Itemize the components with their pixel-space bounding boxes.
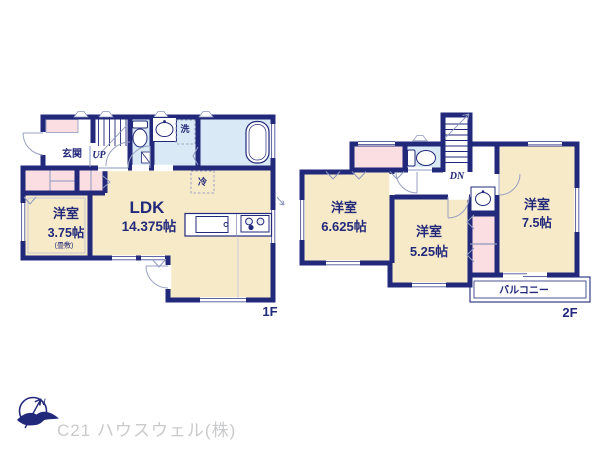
- entrance-closet: [46, 120, 78, 133]
- bedroom1-2f-size-label: 6.625帖: [321, 219, 367, 234]
- bedroom1-2f-label: 洋室: [331, 200, 357, 215]
- washer-label: 洗: [180, 123, 189, 134]
- bedroom-1f-size-label: 3.75帖: [48, 225, 85, 240]
- bedroom-1f-note-label: (畳敷): [55, 241, 74, 250]
- floor-plan-2f: DN 洋室 6.625帖 洋室 5.25帖 洋室 7.5帖 バルコニー 2F: [299, 114, 590, 320]
- stairs-down-label: DN: [449, 171, 465, 182]
- basin-icon-2f: [471, 187, 495, 211]
- ldk-size-label: 14.375帖: [122, 218, 177, 234]
- closet-2f-top: [352, 145, 405, 170]
- stove-icon: [241, 216, 269, 233]
- compass-north-label: N: [39, 397, 46, 408]
- floor1-label: 1F: [262, 304, 277, 319]
- ldk-label: LDK: [130, 198, 166, 217]
- toilet-icon-2f: [408, 150, 436, 166]
- floor2-label: 2F: [562, 305, 577, 320]
- floor-plan-image: 玄関 UP 洗 冷 LDK 14.375帖 洋室 3.75帖 (畳敷) 1F: [0, 0, 600, 450]
- bedroom3-2f-label: 洋室: [524, 197, 550, 212]
- vent-mark-2f: [413, 136, 427, 141]
- entrance-label: 玄関: [62, 147, 82, 160]
- bedroom3-2f-size-label: 7.5帖: [522, 215, 552, 230]
- floor-plan-svg: 玄関 UP 洗 冷 LDK 14.375帖 洋室 3.75帖 (畳敷) 1F: [0, 0, 600, 450]
- bedroom2-2f-label: 洋室: [416, 224, 442, 239]
- vanity-icon: [153, 118, 177, 142]
- compass-icon: N: [17, 397, 59, 428]
- balcony-label: バルコニー: [499, 285, 549, 297]
- company-name: C21 ハウスウェル(株): [57, 421, 236, 440]
- fridge-label: 冷: [198, 176, 207, 187]
- bathtub-icon: [246, 122, 269, 164]
- floor-plan-1f: 玄関 UP 洗 冷 LDK 14.375帖 洋室 3.75帖 (畳敷) 1F: [20, 112, 284, 320]
- bedroom2-2f-size-label: 5.25帖: [410, 244, 448, 259]
- bedroom-1f-label: 洋室: [53, 206, 79, 221]
- kitchen-counter: [185, 214, 272, 237]
- sink-icon: [196, 217, 228, 233]
- stairs-up-label: UP: [92, 150, 106, 161]
